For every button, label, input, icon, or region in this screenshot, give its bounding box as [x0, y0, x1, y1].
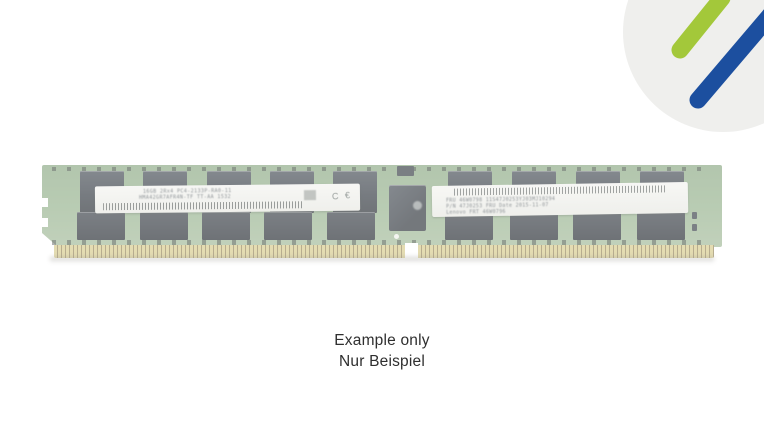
dram-chip	[77, 212, 125, 240]
caption-line-german: Nur Beispiel	[0, 351, 764, 372]
dram-chip	[140, 212, 188, 240]
pcb-left-notch	[41, 218, 48, 227]
dram-chip	[327, 212, 375, 240]
hynix-label-line2: HMA42GR7AFR4N-TF TT-AA 1532	[139, 194, 231, 201]
page: { "window": { "background_color": "#ffff…	[0, 0, 764, 430]
barcode	[454, 185, 666, 195]
caption: Example only Nur Beispiel	[0, 330, 764, 372]
barcode	[103, 201, 303, 210]
brand-logo	[600, 0, 764, 140]
module-shadow	[50, 257, 714, 263]
certification-stamp	[304, 190, 316, 200]
pcb-left-notch	[41, 198, 48, 207]
dram-chip	[573, 212, 621, 240]
dram-chip	[510, 212, 558, 240]
fru-label: FRU 46W0798 11S47J0253YJ03MJ10294 P/N 47…	[432, 182, 688, 217]
hynix-label: 16GB 2Rx4 PC4-2133P-RA0-11 HMA42GR7AFR4N…	[95, 184, 360, 214]
dram-chip	[264, 212, 312, 240]
register-chip	[389, 185, 426, 231]
smd-component	[692, 224, 697, 231]
dram-chip	[637, 212, 685, 240]
fru-label-line3: Lenovo FRT 46W0796	[446, 209, 506, 216]
chip-logo-mark	[413, 201, 422, 210]
dram-chip	[202, 212, 250, 240]
pcb-dot	[394, 234, 399, 239]
memory-module-photo: 16GB 2Rx4 PC4-2133P-RA0-11 HMA42GR7AFR4N…	[42, 164, 722, 270]
caption-line-english: Example only	[0, 330, 764, 351]
top-edge-component	[397, 166, 414, 176]
ce-mark: C €	[332, 190, 353, 202]
smd-component	[692, 212, 697, 219]
